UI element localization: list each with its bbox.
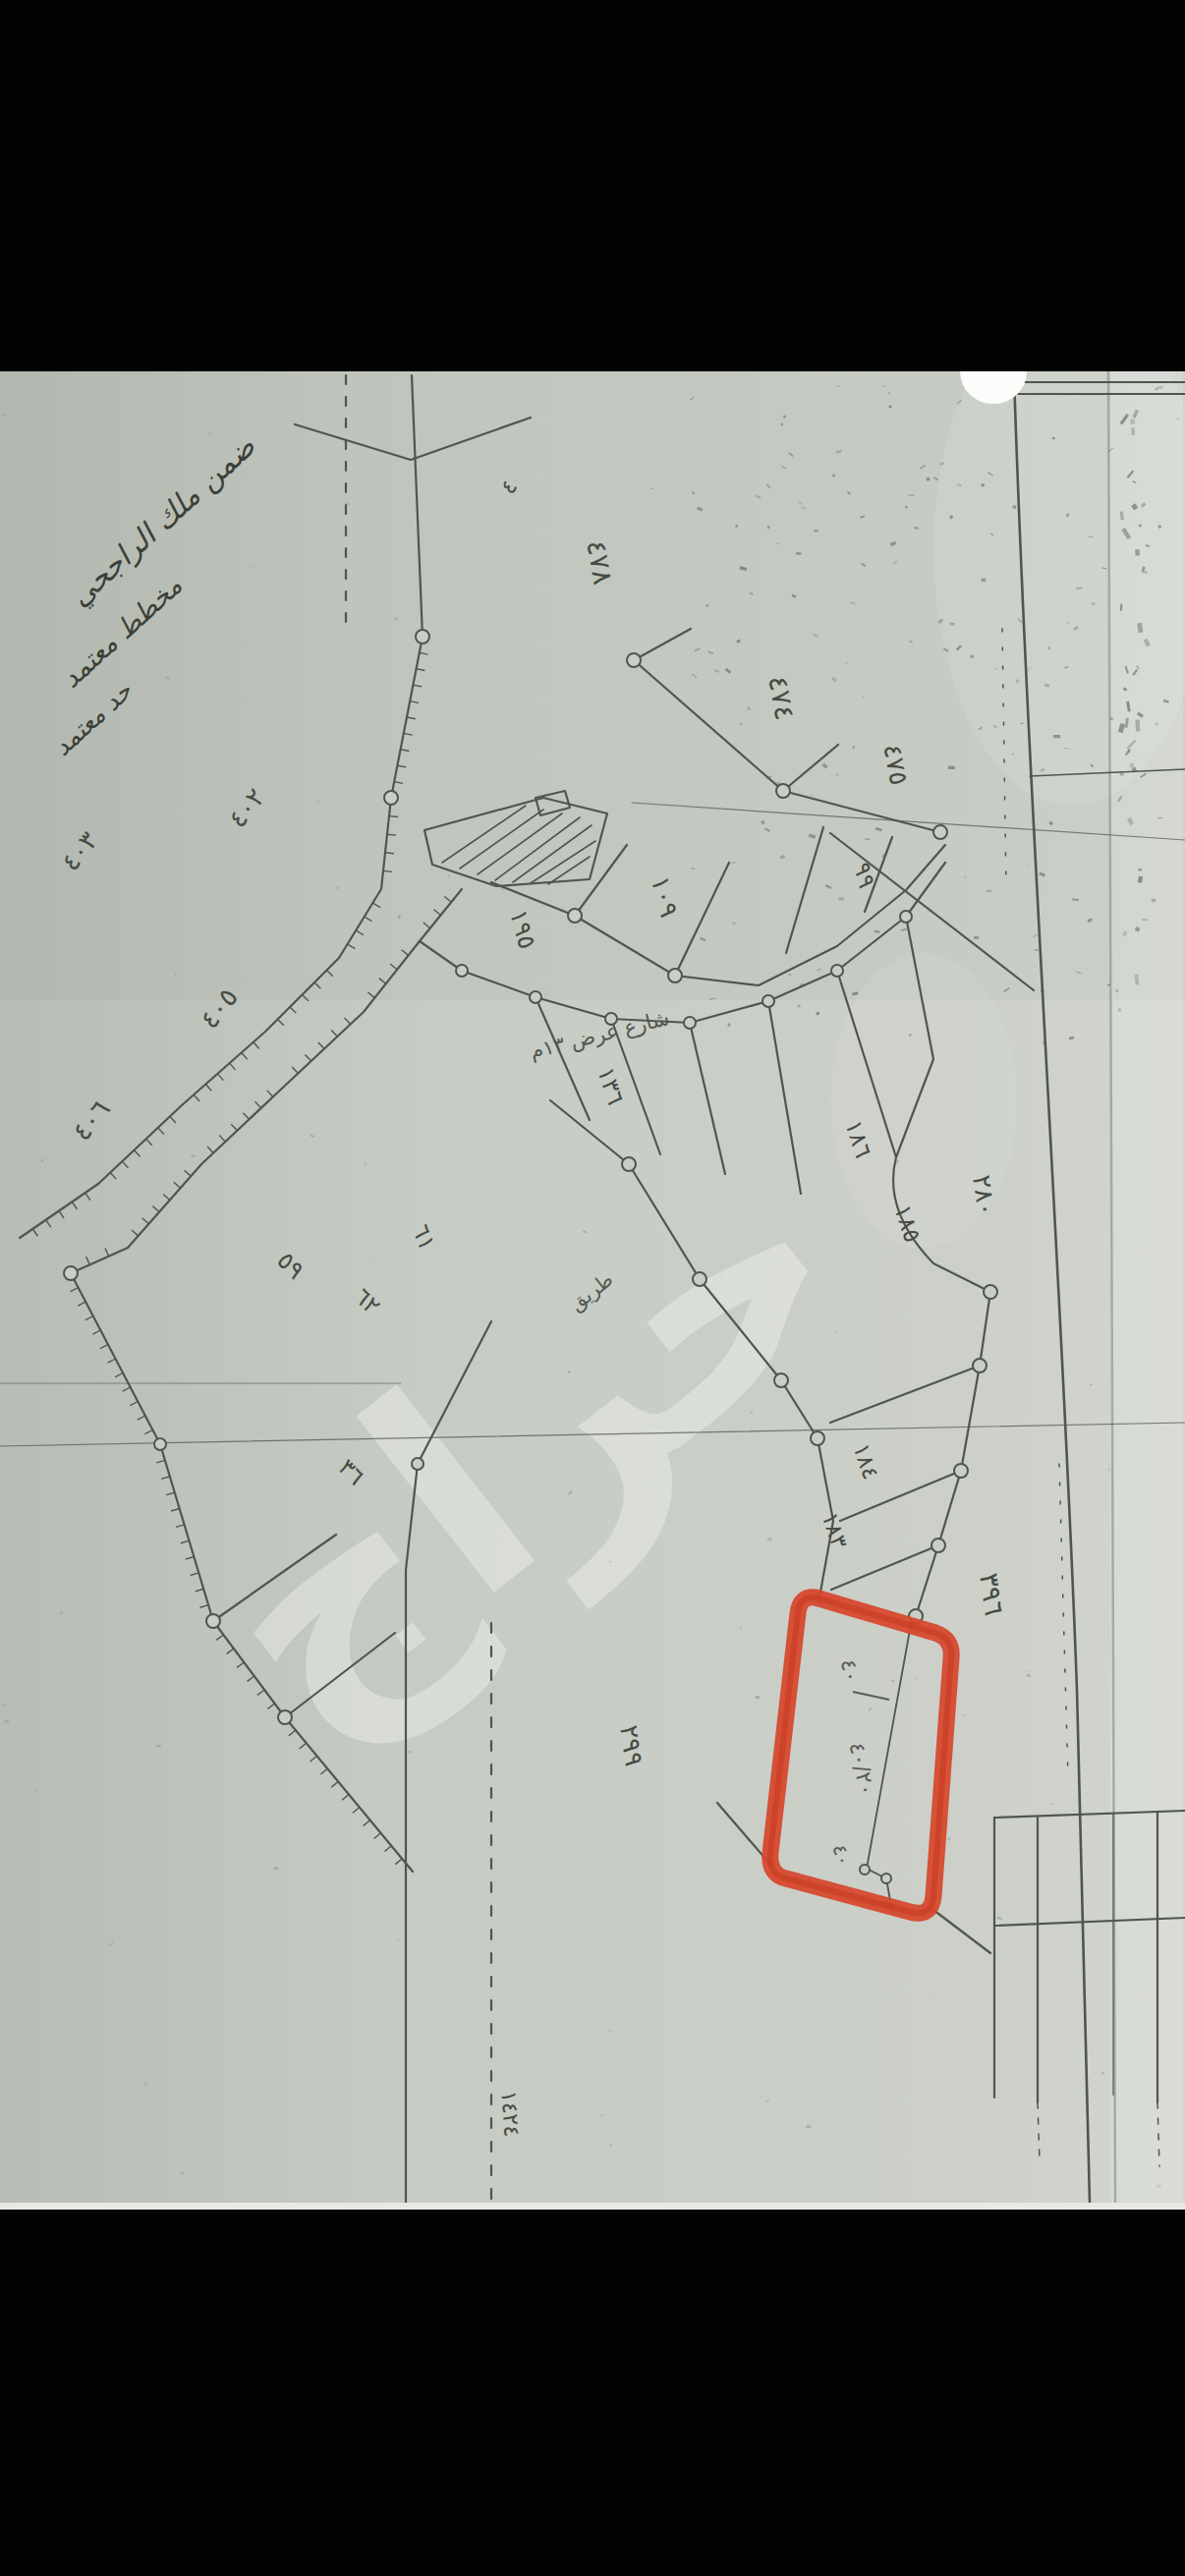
speckle [35, 1790, 37, 1792]
speckle [950, 623, 955, 626]
speckle [1035, 949, 1039, 951]
speckle [888, 392, 890, 394]
speckle [796, 552, 801, 555]
edge-tick [387, 834, 396, 835]
speckle [981, 579, 986, 583]
phone-screenshot: حراج [0, 0, 1185, 2576]
speckle [974, 936, 979, 938]
speckle [806, 2125, 811, 2128]
speckle [1118, 1008, 1121, 1012]
bottom-black-bar [0, 2210, 1185, 2576]
speckle [845, 662, 849, 664]
speckle [448, 875, 450, 877]
speckle [1130, 763, 1134, 768]
speckle [691, 868, 695, 868]
speckle [3, 414, 7, 415]
speckle [798, 1004, 801, 1007]
speckle [839, 897, 844, 900]
speckle [814, 530, 818, 532]
speckle [981, 483, 984, 486]
speckle [914, 527, 919, 529]
speckle [888, 406, 891, 409]
speckle [191, 1154, 195, 1156]
speckle [740, 723, 742, 725]
speckle [948, 765, 955, 769]
plot-number: ١٤٢٤ [496, 2090, 524, 2138]
speckle [369, 1259, 372, 1260]
speckle [1101, 2071, 1104, 2074]
speckle [862, 695, 865, 698]
edge-tick [385, 853, 394, 854]
speckle [1135, 549, 1140, 556]
speckle [1110, 717, 1113, 720]
speckle [317, 800, 319, 802]
plot-number: ٢٨٠ [967, 1173, 1002, 1218]
speckle [651, 488, 654, 490]
speckle [756, 1696, 760, 1699]
plot-number: ٣٩٦ [974, 1571, 1010, 1617]
speckle [409, 1750, 412, 1753]
speckle [1076, 587, 1083, 589]
edge-tick [389, 816, 398, 817]
speckle [1053, 735, 1060, 738]
speckle [1135, 719, 1140, 731]
speckle [1012, 505, 1016, 509]
speckle [735, 525, 738, 528]
speckle [1142, 919, 1148, 920]
speckle [1130, 419, 1135, 424]
top-black-bar [0, 0, 1185, 371]
speckle [1131, 427, 1135, 435]
speckle [1152, 899, 1157, 903]
speckle [987, 890, 991, 891]
speckle [816, 1012, 819, 1016]
plot-number: ٢٩٩ [614, 1723, 649, 1768]
edge-tick [383, 870, 392, 871]
photo-bottom-edge [0, 2203, 1185, 2210]
